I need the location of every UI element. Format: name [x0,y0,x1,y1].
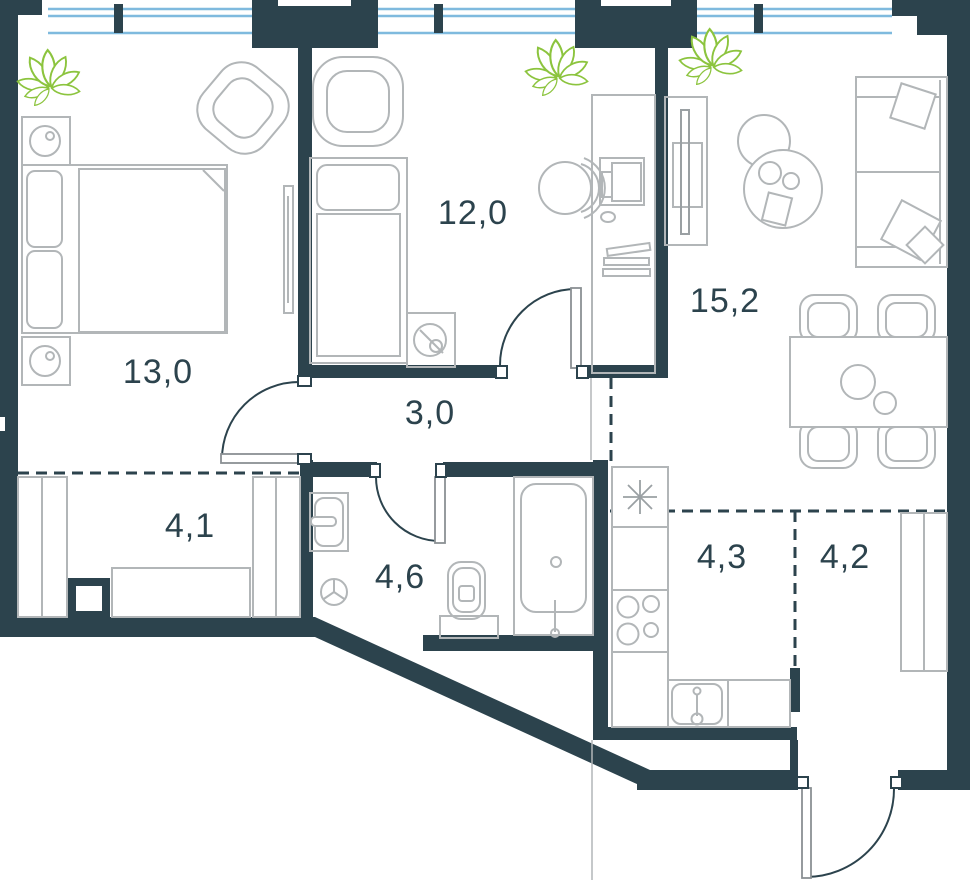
room-label-bathroom: 4,6 [375,558,425,596]
washbasin [310,493,348,551]
nightstand [22,117,70,165]
window-bay-bedroom2 [378,4,575,33]
room-label-bedroom-second: 12,0 [438,194,508,232]
mouse-icon [601,212,615,222]
room-label-hallway: 3,0 [405,394,455,432]
wall-bath-top-right [443,462,593,477]
room-label-bedroom-main: 13,0 [123,353,193,391]
vent-icon [321,579,347,605]
plant-icon [16,50,81,108]
kitchen-counter-bottom [668,680,790,727]
wall-left [0,0,18,637]
plant-icon [524,40,589,98]
nightstand [22,337,70,385]
window-bay-living [697,4,892,33]
window-mullion [114,4,123,33]
room-entry [901,513,947,671]
room-bathroom [310,477,593,638]
room-label-wardrobe: 4,1 [165,507,215,545]
tv-console [665,97,707,245]
windows [48,4,892,33]
wall-wardrobe-bath [300,460,313,617]
armchair [187,52,300,165]
desk-chair [539,158,605,218]
closet [253,477,300,617]
coffee-tables [738,115,822,228]
room-label-living: 15,2 [690,282,760,320]
floor-plan-page: 13,0 12,0 3,0 15,2 4,1 4,6 4,3 4,2 [0,0,970,880]
wall-kitchen-bottom [593,727,797,740]
pier-2-notch [601,0,671,6]
room-bedroom-main [16,50,299,385]
dining-set [790,295,947,468]
double-bed [22,165,227,333]
wall-bottom-left [0,617,315,637]
pier-1-notch [278,0,351,6]
books-icon [603,243,650,276]
asterisk-icon [623,480,657,514]
bench [112,568,250,617]
sofa [856,77,947,267]
room-kitchen [612,467,790,727]
wall-right [947,14,970,790]
room-wardrobe [18,477,300,619]
desk [592,95,655,373]
window-pier-2 [575,0,697,48]
wall-tv [284,186,293,313]
single-bed [310,158,407,363]
column [68,578,110,619]
drain-icon [551,557,561,567]
window-mullion [754,4,763,33]
tv-icon [681,110,689,234]
floor-plan: 13,0 12,0 3,0 15,2 4,1 4,6 4,3 4,2 [0,0,970,880]
armchair [313,57,403,146]
door-bedroom-main [221,376,311,464]
room-living [665,29,947,468]
door-bedroom-second [496,288,588,378]
wall-bottom-entry-right [898,770,970,790]
room-label-entry: 4,2 [820,538,870,576]
dining-chair [800,295,857,343]
faucet-icon [311,517,336,526]
wall-bedroom2-bottom-left [298,365,502,378]
closet [18,477,67,617]
wall-counter-stub [790,668,800,712]
wall-bottom-entry-left [637,770,798,790]
room-label-kitchen: 4,3 [697,538,747,576]
dining-chair [878,295,935,343]
bathtub [514,477,593,637]
window-mullion [434,4,443,33]
door-bathroom [370,464,446,543]
wall-bedroom2-living [655,46,668,378]
window-pier-1 [252,0,378,48]
window-bay-bedroom [48,4,252,33]
wall-bath-top-left [313,462,377,477]
toilet [440,562,498,638]
door-entrance [797,777,902,878]
closet [901,513,947,671]
wall-left-notch [0,417,5,431]
washing-machine [407,313,455,367]
dining-table [790,337,947,427]
wall-top-left-tab [0,0,42,15]
wall-kitchen-left [593,460,608,740]
room-labels: 13,0 12,0 3,0 15,2 4,1 4,6 4,3 4,2 [123,194,870,596]
